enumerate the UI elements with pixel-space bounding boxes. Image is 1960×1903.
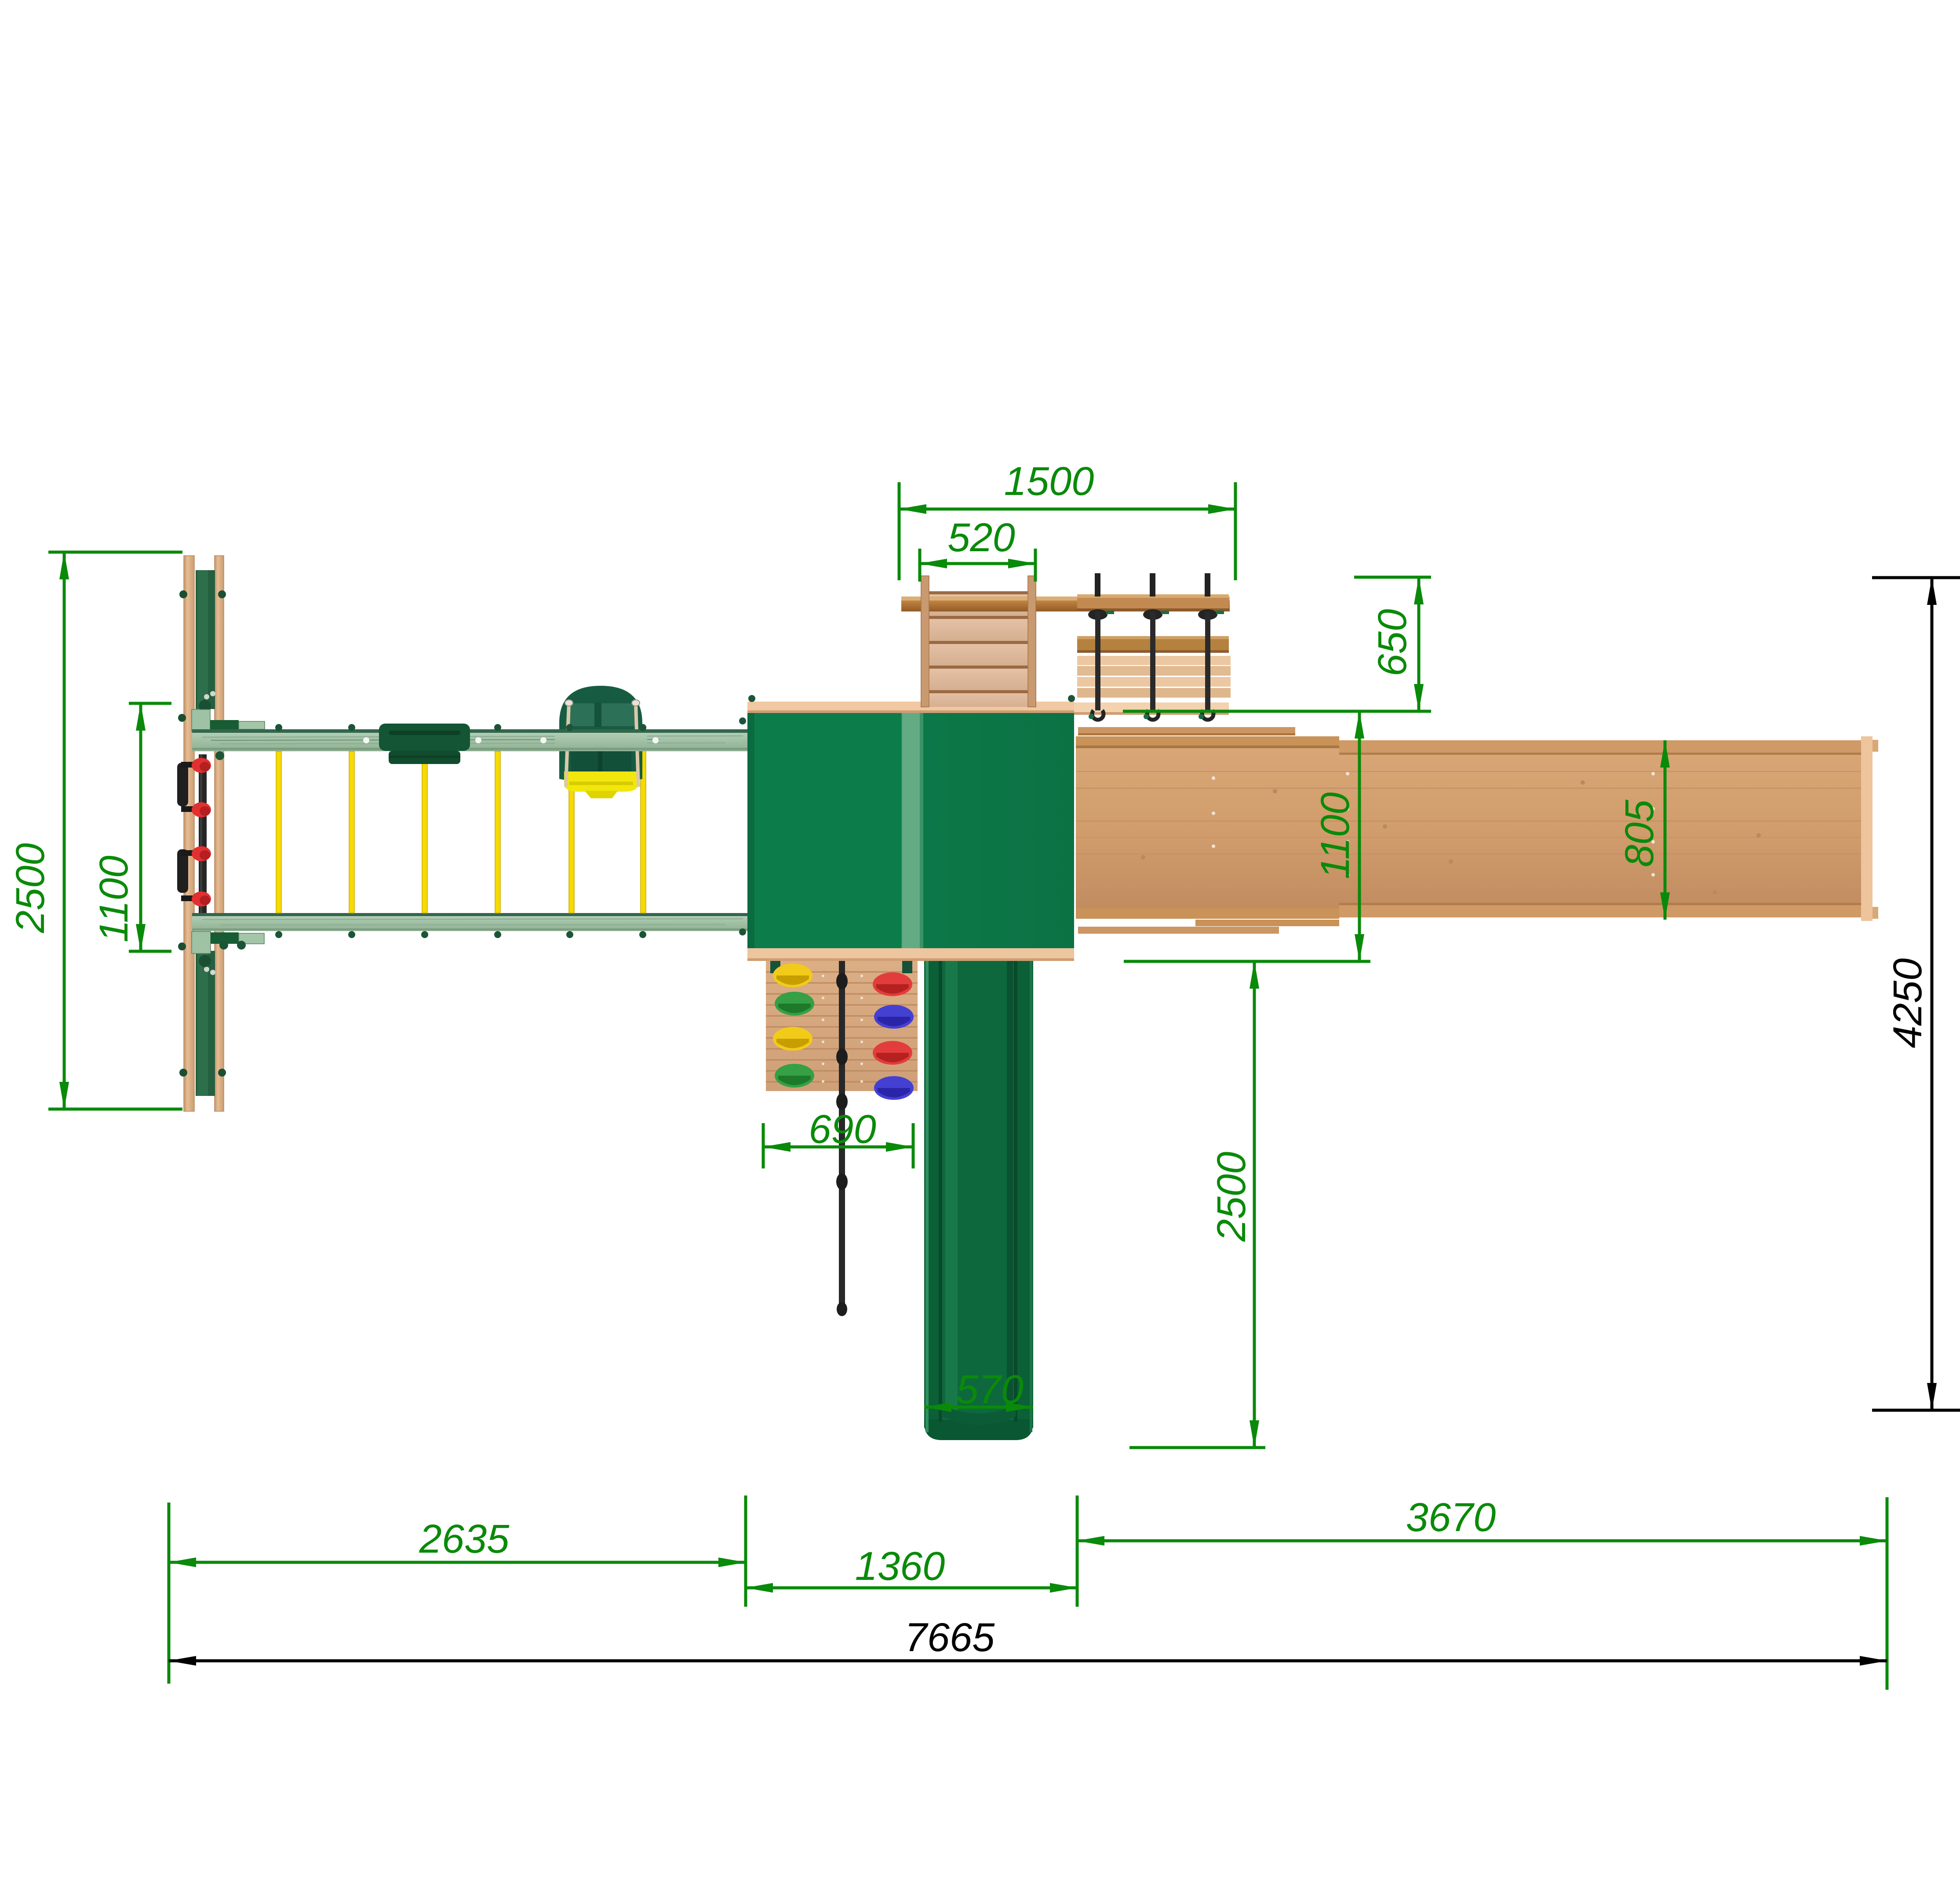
svg-text:1360: 1360 — [855, 1544, 945, 1589]
svg-text:3670: 3670 — [1406, 1495, 1496, 1540]
svg-text:520: 520 — [947, 515, 1015, 560]
svg-text:4250: 4250 — [1885, 958, 1930, 1048]
svg-text:7665: 7665 — [905, 1615, 995, 1660]
svg-text:1500: 1500 — [1004, 459, 1094, 504]
svg-text:2500: 2500 — [1209, 1152, 1254, 1242]
svg-text:1100: 1100 — [1313, 792, 1358, 879]
svg-text:690: 690 — [809, 1107, 876, 1152]
svg-text:1100: 1100 — [91, 855, 136, 942]
svg-text:650: 650 — [1370, 609, 1415, 677]
svg-text:805: 805 — [1617, 799, 1662, 867]
svg-text:2635: 2635 — [419, 1517, 510, 1561]
svg-text:570: 570 — [956, 1367, 1024, 1412]
svg-text:2500: 2500 — [8, 843, 53, 934]
